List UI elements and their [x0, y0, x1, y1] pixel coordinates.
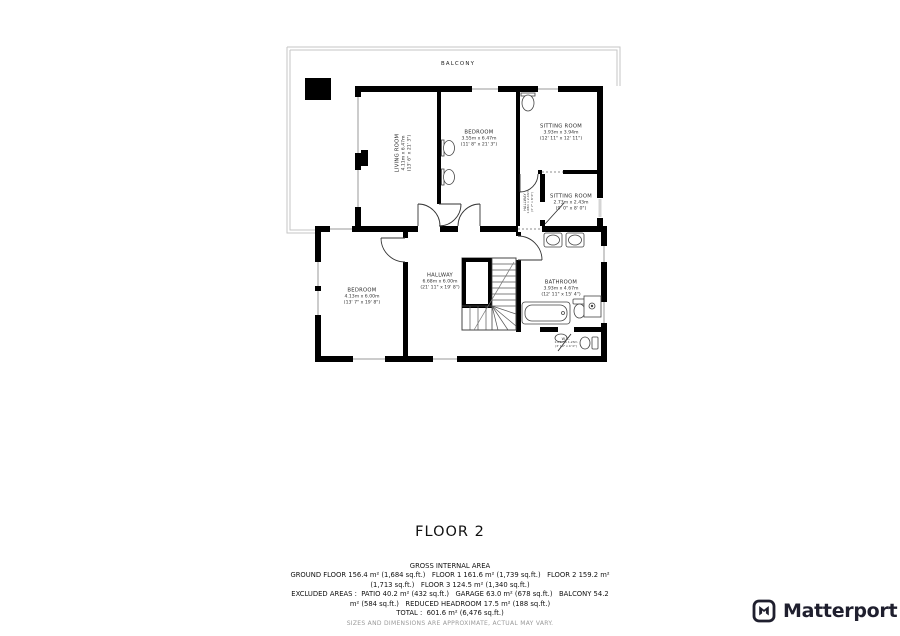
room-dim-imperial: (21' 11" x 19' 8"): [398, 286, 483, 292]
room-label-sitting-room-2: SITTING ROOM 2.73m x 2.43m (9' 0" x 8' 0…: [529, 194, 614, 213]
room-name: SITTING ROOM: [509, 124, 613, 131]
basin-sitting-room: [521, 93, 535, 111]
room-dim-imperial: (11' 8" x 21' 3"): [434, 143, 524, 149]
floor-plan-drawing: [0, 0, 900, 636]
matterport-logo-icon: [752, 599, 776, 623]
page-title: FLOOR 2: [0, 524, 900, 540]
matterport-wordmark: Matterport: [783, 600, 897, 622]
room-label-sitting-room-1: SITTING ROOM 3.93m x 3.94m (12' 11" x 12…: [509, 124, 613, 143]
shower: [584, 296, 601, 317]
area-line: (1,713 sq.ft.) FLOOR 3 124.5 m² (1,340 s…: [0, 581, 900, 590]
room-name: BEDROOM: [317, 288, 407, 295]
room-dim-imperial: (12' 11" x 12' 11"): [509, 137, 613, 143]
room-dim-imperial: (9' 0" x 8' 0"): [529, 207, 614, 213]
room-dim-imperial: (13' 6" x 21' 3"): [408, 103, 414, 203]
gross-internal-area-heading: GROSS INTERNAL AREA: [0, 562, 900, 571]
room-label-bathroom: BATHROOM 3.93m x 4.67m (12' 11" x 15' 4"…: [518, 280, 604, 299]
matterport-branding: Matterport: [752, 599, 897, 623]
bathtub: [522, 302, 570, 324]
chimney-block: [305, 78, 331, 100]
room-name: BATHROOM: [518, 280, 604, 287]
floorplan-page: BALCONY LIVING ROOM 4.11m x 6.47m (13' 6…: [0, 0, 900, 636]
room-label-wc: W.C. 1.09m x 1.23m (3' 10" x 4' 0"): [548, 337, 584, 349]
room-label-living-room: LIVING ROOM 4.11m x 6.47m (13' 6" x 21' …: [395, 103, 414, 203]
room-label-hallway-main: HALLWAY 6.68m x 6.00m (21' 11" x 19' 8"): [398, 273, 483, 292]
room-dim-imperial: (3' 10" x 4' 0"): [548, 345, 584, 349]
room-dim-imperial: (13' 7" x 19' 8"): [317, 301, 407, 307]
room-name: SITTING ROOM: [529, 194, 614, 201]
room-dim-imperial: (12' 11" x 15' 4"): [518, 293, 604, 299]
room-name: LIVING ROOM: [395, 103, 402, 203]
area-line: GROUND FLOOR 156.4 m² (1,684 sq.ft.) FLO…: [0, 571, 900, 580]
staircase: [462, 258, 516, 330]
room-name: HALLWAY: [398, 273, 483, 280]
room-label-bedroom-lower: BEDROOM 4.13m x 6.00m (13' 7" x 19' 8"): [317, 288, 407, 307]
bathroom-sinks: [544, 233, 584, 247]
balcony-label: BALCONY: [441, 61, 475, 67]
